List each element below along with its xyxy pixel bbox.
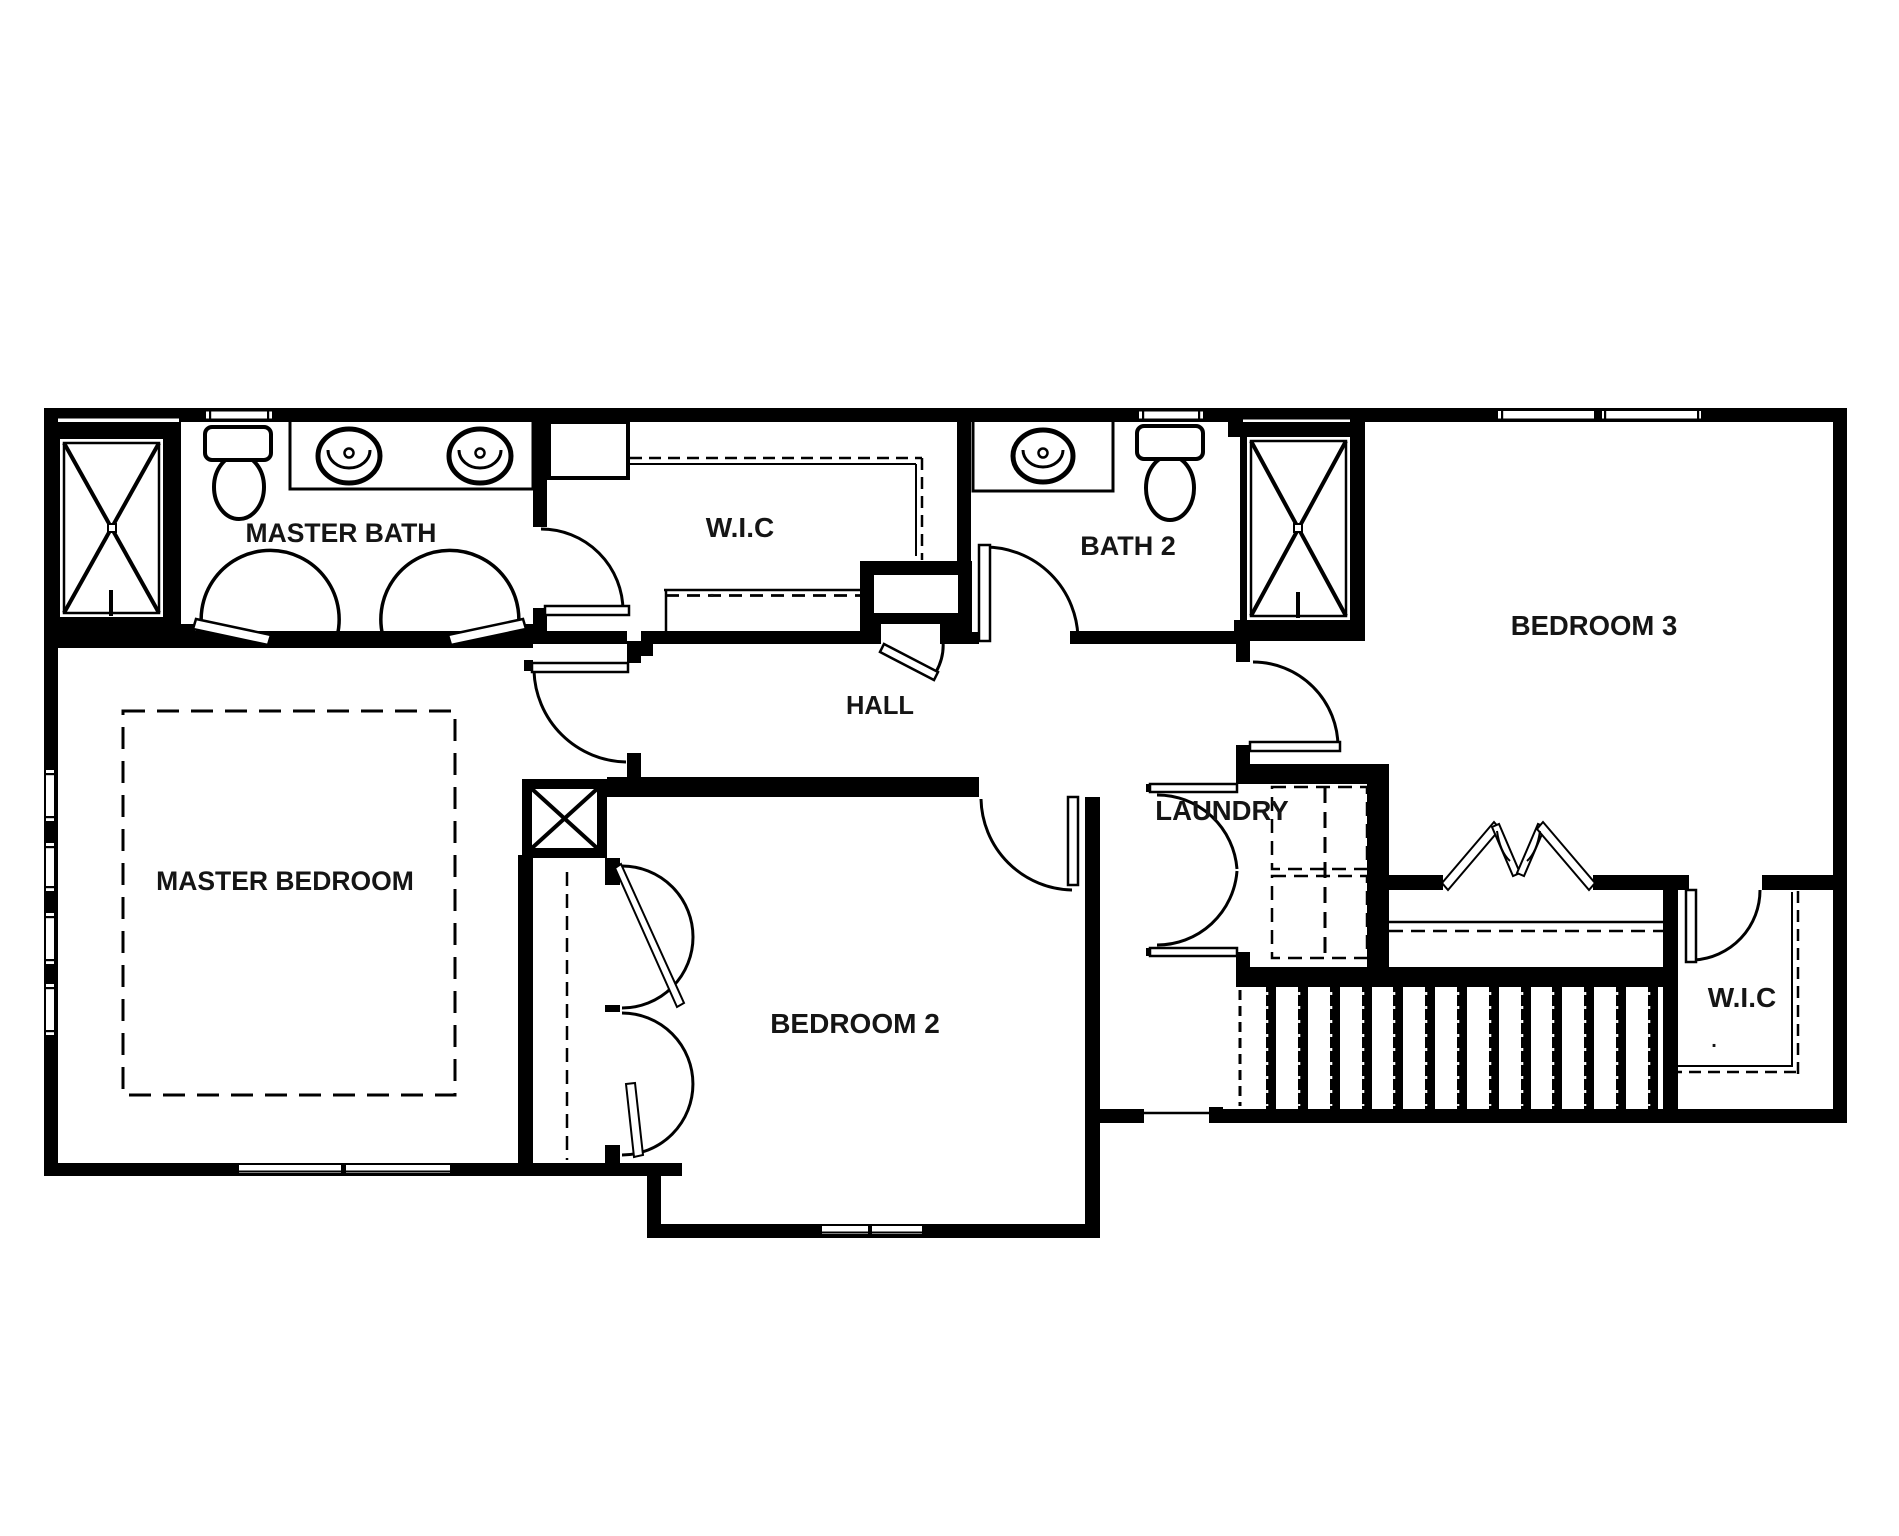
svg-text:LAUNDRY: LAUNDRY (1155, 795, 1288, 826)
svg-text:MASTER BATH: MASTER BATH (246, 518, 437, 548)
svg-text:.: . (1711, 1030, 1717, 1052)
svg-text:HALL: HALL (846, 692, 914, 720)
svg-text:W.I.C: W.I.C (1708, 982, 1776, 1013)
svg-text:MASTER BEDROOM: MASTER BEDROOM (156, 866, 414, 896)
svg-text:BATH 2: BATH 2 (1080, 531, 1176, 561)
svg-text:.: . (709, 580, 715, 602)
svg-text:W.I.C: W.I.C (706, 512, 774, 543)
svg-text:BEDROOM 2: BEDROOM 2 (770, 1008, 940, 1039)
svg-text:BEDROOM 3: BEDROOM 3 (1511, 610, 1678, 641)
